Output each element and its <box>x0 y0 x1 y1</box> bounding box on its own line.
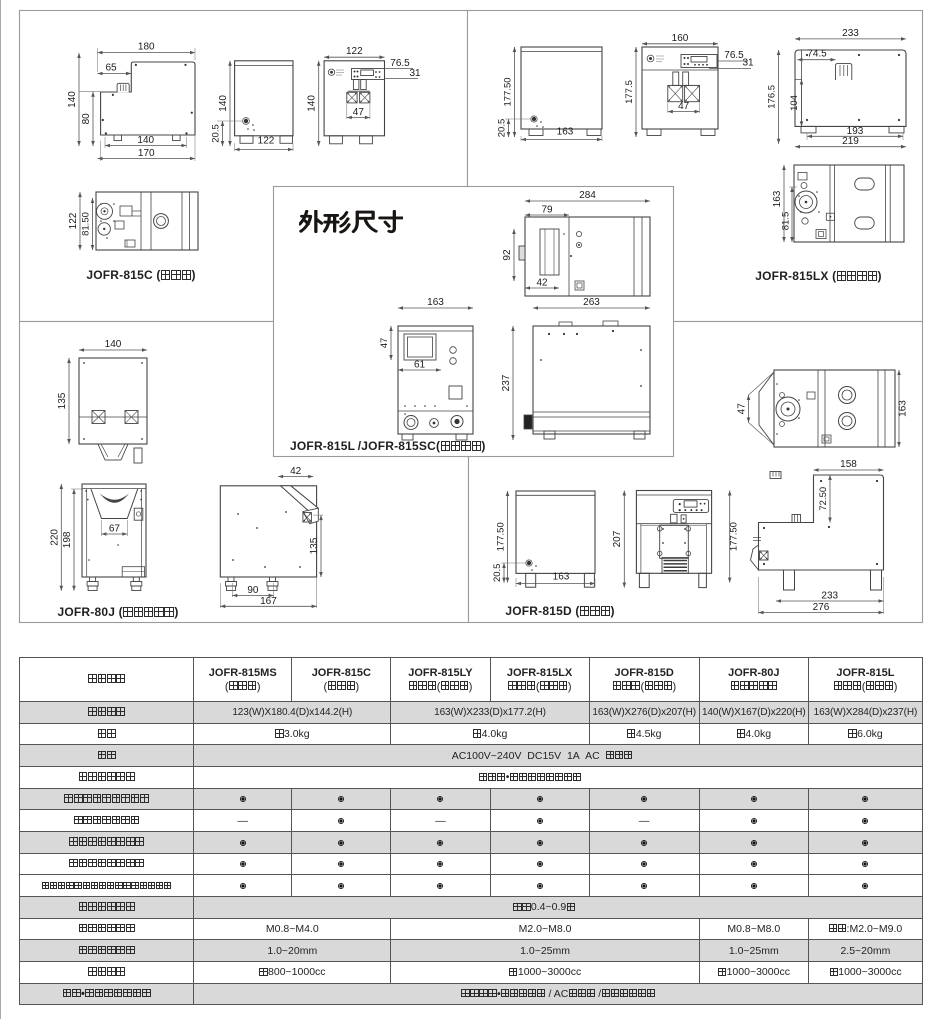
svg-text:79: 79 <box>541 205 553 216</box>
svg-text:163: 163 <box>772 190 783 207</box>
svg-text:233: 233 <box>842 28 859 39</box>
svg-text:61: 61 <box>414 360 426 371</box>
svg-text:47: 47 <box>353 107 365 118</box>
svg-text:219: 219 <box>842 136 859 147</box>
svg-text:122: 122 <box>346 46 363 57</box>
svg-text:42: 42 <box>536 278 548 289</box>
svg-text:90: 90 <box>247 585 259 596</box>
svg-text:167: 167 <box>260 596 277 607</box>
svg-text:170: 170 <box>138 148 155 159</box>
svg-text:220: 220 <box>49 529 60 546</box>
svg-text:81.50: 81.50 <box>81 212 92 236</box>
svg-text:263: 263 <box>583 297 600 308</box>
svg-text:47: 47 <box>379 338 390 349</box>
svg-text:47: 47 <box>678 101 690 112</box>
svg-text:20.5: 20.5 <box>211 124 222 143</box>
svg-text:135: 135 <box>309 537 320 554</box>
svg-text:74.5: 74.5 <box>807 49 827 60</box>
svg-text:207: 207 <box>612 530 623 547</box>
svg-text:160: 160 <box>672 33 689 44</box>
svg-text:67: 67 <box>109 524 121 535</box>
svg-text:135: 135 <box>57 392 68 409</box>
svg-text:180: 180 <box>138 42 155 53</box>
svg-text:42: 42 <box>290 466 302 477</box>
svg-text:276: 276 <box>813 602 830 613</box>
svg-text:284: 284 <box>579 190 596 201</box>
svg-text:177.50: 177.50 <box>496 522 507 551</box>
svg-text:237: 237 <box>501 374 512 391</box>
svg-text:20.5: 20.5 <box>497 119 508 138</box>
svg-text:140: 140 <box>218 95 229 112</box>
svg-text:177.5: 177.5 <box>624 80 635 104</box>
svg-text:80: 80 <box>81 113 92 125</box>
svg-text:193: 193 <box>847 126 864 137</box>
svg-text:31: 31 <box>742 58 754 69</box>
svg-text:177.50: 177.50 <box>729 522 740 551</box>
svg-text:163: 163 <box>557 127 574 138</box>
svg-text:163: 163 <box>427 297 444 308</box>
svg-text:76.5: 76.5 <box>390 58 410 69</box>
svg-text:122: 122 <box>68 212 79 229</box>
svg-text:163: 163 <box>898 400 909 417</box>
svg-text:122: 122 <box>258 136 275 147</box>
svg-text:72.50: 72.50 <box>818 487 829 511</box>
svg-text:163: 163 <box>553 572 570 583</box>
svg-text:140: 140 <box>67 91 78 108</box>
svg-text:140: 140 <box>105 339 122 350</box>
svg-text:20.5: 20.5 <box>492 564 503 583</box>
svg-text:177.50: 177.50 <box>503 77 514 106</box>
svg-text:81.5: 81.5 <box>781 212 792 231</box>
svg-text:176.5: 176.5 <box>767 85 778 109</box>
svg-text:31: 31 <box>409 68 421 79</box>
svg-text:76.5: 76.5 <box>724 50 744 61</box>
svg-text:198: 198 <box>62 531 73 548</box>
svg-text:104: 104 <box>789 95 800 111</box>
svg-text:65: 65 <box>105 63 117 74</box>
svg-text:47: 47 <box>737 403 748 415</box>
svg-text:92: 92 <box>502 249 513 261</box>
svg-text:233: 233 <box>821 591 838 602</box>
svg-text:140: 140 <box>307 95 318 112</box>
svg-text:140: 140 <box>137 135 154 146</box>
svg-text:158: 158 <box>840 459 857 470</box>
